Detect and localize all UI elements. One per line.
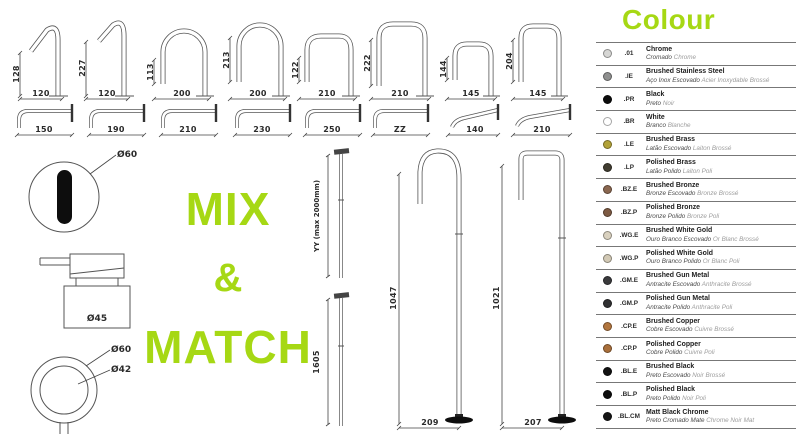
colour-name: Brushed White Gold — [646, 227, 796, 236]
colour-code: .LE — [612, 141, 646, 148]
colour-swatch — [603, 276, 612, 285]
legend-row-brushed-white-gold: .WG.E Brushed White Gold Ouro Branco Esc… — [596, 224, 796, 247]
colour-name-pt: Preto Polido — [646, 395, 680, 402]
legend-row-brushed-copper: .CP.E Brushed Copper Cobre Escovado Cuiv… — [596, 314, 796, 337]
legend-row-brushed-stainless: .IE Brushed Stainless Steel Aço Inox Esc… — [596, 65, 796, 88]
dim-height: 1047 — [389, 286, 398, 309]
legend-row-brushed-black: .BL.E Brushed Black Preto Escovado Noir … — [596, 360, 796, 383]
floor-spout-drawing-2: 1021 207 — [486, 138, 586, 432]
legend-row-polished-copper: .CP.P Polished Copper Cobre Polido Cuivr… — [596, 337, 796, 360]
colour-name-fr: Laiton Poli — [683, 168, 712, 175]
colour-swatch — [603, 163, 612, 172]
colour-name-fr: Blanche — [668, 122, 691, 129]
colour-name: Chrome — [646, 46, 796, 55]
colour-name-fr: Chrome Noir Mat — [706, 417, 754, 424]
colour-code: .CP.P — [612, 345, 646, 352]
colour-swatch — [603, 72, 612, 81]
mix-and-match-headline: MIX & MATCH — [135, 186, 321, 370]
colour-swatch — [603, 412, 612, 421]
dim-width: 120 — [98, 89, 116, 98]
colour-swatch — [603, 49, 612, 58]
colour-code: .IE — [612, 73, 646, 80]
colour-name-fr: Or Blanc Brossé — [713, 236, 759, 243]
colour-code: .BZ.P — [612, 209, 646, 216]
colour-swatch — [603, 95, 612, 104]
dim-base: 209 — [421, 418, 439, 427]
legend-row-white: .BR White Branco Blanche — [596, 110, 796, 133]
headline-ampersand: & — [214, 258, 243, 298]
dim-height: 144 — [439, 60, 448, 78]
legend-row-brushed-bronze: .BZ.E Brushed Bronze Bronze Escovado Bro… — [596, 178, 796, 201]
faucet-drawing-2: 227 120 — [78, 8, 140, 102]
colour-name-pt: Preto — [646, 100, 661, 107]
wall-spout-drawing-8: 210 — [504, 102, 576, 142]
dim-width: 120 — [32, 89, 50, 98]
legend-row-matt-black-chrome: .BL.CM Matt Black Chrome Preto Cromado M… — [596, 405, 796, 428]
colour-code: .PR — [612, 96, 646, 103]
wall-spout-drawing-7: 140 — [440, 102, 504, 142]
dim-width: 250 — [323, 125, 341, 134]
legend-row-polished-brass: .LP Polished Brass Latão Polido Laiton P… — [596, 155, 796, 178]
dim-width: 210 — [391, 89, 409, 98]
dim-width: 210 — [318, 89, 336, 98]
riser-drawing-2: 1605 — [308, 290, 356, 430]
colour-legend: Colour .01 Chrome Cromado Chrome .IE Bru… — [596, 2, 796, 429]
riser-height-label: 1605 — [312, 350, 321, 374]
dim-width: ZZ — [394, 125, 406, 134]
faucet-drawing-1: 128 120 — [12, 8, 74, 102]
colour-code: .WG.P — [612, 255, 646, 262]
legend-title: Colour — [622, 4, 796, 36]
legend-row-polished-gun-metal: .GM.P Polished Gun Metal Antracite Polid… — [596, 292, 796, 315]
dim-height: 1021 — [492, 286, 501, 310]
faucet-drawing-8: 204 145 — [508, 8, 576, 102]
colour-name: Brushed Stainless Steel — [646, 68, 796, 77]
colour-code: .BL.P — [612, 391, 646, 398]
colour-swatch — [603, 185, 612, 194]
dim-width: 230 — [253, 125, 271, 134]
dim-width: 200 — [173, 89, 191, 98]
headline-line-1: MIX — [186, 186, 271, 232]
legend-rows: .01 Chrome Cromado Chrome .IE Brushed St… — [596, 42, 796, 429]
colour-name-pt: Branco — [646, 122, 666, 129]
colour-name-pt: Cobre Polido — [646, 349, 682, 356]
colour-code: .WG.E — [612, 232, 646, 239]
colour-name: Brushed Brass — [646, 136, 796, 145]
colour-name: Polished Black — [646, 386, 796, 395]
colour-name-fr: Or Blanc Poli — [703, 258, 740, 265]
colour-name: Brushed Gun Metal — [646, 272, 796, 281]
colour-name-pt: Antracite Polido — [646, 304, 690, 311]
colour-name-pt: Antracite Escovado — [646, 281, 700, 288]
wall-spout-drawing-6: ZZ — [366, 102, 434, 142]
wall-spout-drawing-1: 150 — [10, 102, 78, 142]
legend-row-black: .PR Black Preto Noir — [596, 87, 796, 110]
sensor-drawing: Ø60 — [20, 142, 142, 242]
colour-name: Black — [646, 91, 796, 100]
dim-width: 210 — [179, 125, 197, 134]
dim-width: 200 — [249, 89, 267, 98]
colour-swatch — [603, 231, 612, 240]
colour-name-pt: Cobre Escovado — [646, 326, 693, 333]
floor-spout-drawing-1: 1047 209 — [385, 138, 485, 432]
sensor-diameter-label: Ø60 — [117, 149, 137, 160]
legend-row-chrome: .01 Chrome Cromado Chrome — [596, 42, 796, 65]
riser-drawing-1: YY (max 2000mm) — [308, 146, 356, 282]
legend-row-polished-white-gold: .WG.P Polished White Gold Ouro Branco Po… — [596, 246, 796, 269]
colour-name-fr: Acier Inoxydable Brossé — [701, 77, 769, 84]
colour-name: Polished White Gold — [646, 250, 796, 259]
colour-name-fr: Noir Poli — [682, 395, 706, 402]
dim-width: 145 — [462, 89, 480, 98]
colour-name: Brushed Black — [646, 363, 796, 372]
dim-height: 227 — [78, 59, 87, 77]
dim-height: 204 — [505, 52, 514, 70]
colour-code: .01 — [612, 50, 646, 57]
colour-name-fr: Cuivre Brossé — [694, 326, 734, 333]
colour-name-fr: Anthracite Poli — [692, 304, 733, 311]
colour-name-pt: Cromado — [646, 54, 672, 61]
faucet-drawing-6: 222 210 — [366, 8, 438, 102]
faucet-drawing-3: 113 200 — [148, 8, 218, 102]
colour-name-fr: Bronze Poli — [687, 213, 719, 220]
faucet-drawing-7: 144 145 — [442, 8, 504, 102]
wall-spout-drawing-5: 250 — [298, 102, 366, 142]
colour-code: .BZ.E — [612, 186, 646, 193]
colour-name-fr: Cuivre Poli — [684, 349, 714, 356]
colour-code: .BR — [612, 118, 646, 125]
legend-row-brushed-brass: .LE Brushed Brass Latão Escovado Laiton … — [596, 133, 796, 156]
knob-drawing: Ø60 Ø42 — [16, 338, 138, 434]
dim-height: 213 — [222, 51, 231, 69]
colour-swatch — [603, 208, 612, 217]
colour-name: Polished Gun Metal — [646, 295, 796, 304]
colour-name-pt: Ouro Branco Polido — [646, 258, 701, 265]
colour-name-pt: Aço Inox Escovado — [646, 77, 700, 84]
colour-name: Brushed Bronze — [646, 182, 796, 191]
dim-width: 190 — [107, 125, 125, 134]
colour-swatch — [603, 390, 612, 399]
colour-name-pt: Latão Escovado — [646, 145, 691, 152]
faucet-drawing-4: 213 200 — [224, 8, 294, 102]
dim-height: 122 — [291, 61, 300, 79]
colour-name-pt: Bronze Escovado — [646, 190, 695, 197]
legend-row-polished-black: .BL.P Polished Black Preto Polido Noir P… — [596, 382, 796, 405]
colour-code: .GM.E — [612, 277, 646, 284]
wall-spout-drawing-3: 210 — [154, 102, 222, 142]
colour-name-fr: Anthracite Brossé — [702, 281, 752, 288]
colour-swatch — [603, 322, 612, 331]
colour-name-fr: Bronze Brossé — [697, 190, 738, 197]
colour-name-pt: Preto Cromado Mate — [646, 417, 704, 424]
dim-base: 207 — [524, 418, 542, 427]
colour-code: .BL.CM — [612, 413, 646, 420]
colour-swatch — [603, 140, 612, 149]
colour-name: Polished Bronze — [646, 204, 796, 213]
legend-row-polished-bronze: .BZ.P Polished Bronze Bronze Polido Bron… — [596, 201, 796, 224]
dim-width: 145 — [529, 89, 547, 98]
knob-outer-label: Ø60 — [111, 344, 131, 355]
colour-name-pt: Latão Polido — [646, 168, 681, 175]
colour-name: Polished Copper — [646, 341, 796, 350]
wall-spout-drawing-2: 190 — [82, 102, 150, 142]
colour-code: .GM.P — [612, 300, 646, 307]
colour-name-pt: Bronze Polido — [646, 213, 685, 220]
colour-name: Brushed Copper — [646, 318, 796, 327]
dim-width: 140 — [466, 125, 484, 134]
colour-swatch — [603, 117, 612, 126]
wall-spout-drawing-4: 230 — [228, 102, 296, 142]
headline-line-2: MATCH — [144, 324, 312, 370]
colour-name: White — [646, 114, 796, 123]
colour-swatch — [603, 344, 612, 353]
colour-name-fr: Chrome — [674, 54, 696, 61]
colour-code: .LP — [612, 164, 646, 171]
colour-name-fr: Noir Brossé — [692, 372, 725, 379]
colour-name-pt: Preto Escovado — [646, 372, 690, 379]
catalog-page: { "page": {"accent": "#a6d814", "mix_lin… — [0, 0, 800, 434]
dim-height: 222 — [363, 54, 372, 72]
legend-row-brushed-gun-metal: .GM.E Brushed Gun Metal Antracite Escova… — [596, 269, 796, 292]
colour-name: Matt Black Chrome — [646, 409, 796, 418]
colour-code: .CP.E — [612, 323, 646, 330]
colour-swatch — [603, 299, 612, 308]
riser-height-label: YY (max 2000mm) — [313, 180, 321, 253]
faucet-drawing-5: 122 210 — [294, 8, 364, 102]
knob-inner-label: Ø42 — [111, 364, 131, 375]
colour-name-fr: Laiton Brossé — [693, 145, 732, 152]
colour-name-pt: Ouro Branco Escovado — [646, 236, 711, 243]
sensor-window — [57, 170, 72, 224]
colour-name: Polished Brass — [646, 159, 796, 168]
colour-name-fr: Noir — [663, 100, 675, 107]
dim-width: 150 — [35, 125, 53, 134]
colour-swatch — [603, 367, 612, 376]
dim-width: 210 — [533, 125, 551, 134]
colour-swatch — [603, 254, 612, 263]
dim-height: 113 — [146, 63, 155, 81]
dim-height: 128 — [12, 65, 21, 83]
dispenser-diameter-label: Ø45 — [87, 313, 107, 324]
colour-code: .BL.E — [612, 368, 646, 375]
dispenser-drawing: Ø45 — [32, 248, 142, 330]
